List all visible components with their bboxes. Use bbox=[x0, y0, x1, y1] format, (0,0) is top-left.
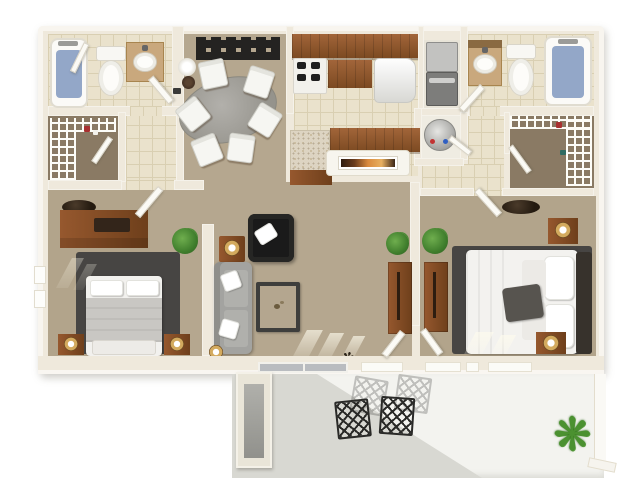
breakfast-bar-top bbox=[330, 128, 420, 152]
dining-floor-lamp-shade bbox=[178, 58, 196, 76]
living-bookshelf bbox=[388, 262, 412, 334]
dining-chair bbox=[226, 132, 256, 163]
wall-laundry-bottom bbox=[420, 108, 462, 116]
living-bookshelf-handle bbox=[397, 272, 400, 320]
water-heater-red-valve bbox=[430, 139, 435, 144]
wall-waterheater-bottom bbox=[414, 158, 464, 166]
bedroom-1-lamp-left bbox=[64, 337, 78, 351]
bedroom-2-headboard bbox=[576, 252, 592, 354]
kitchen-base-cabinets bbox=[328, 60, 372, 88]
closet-2-shelving-top bbox=[510, 116, 592, 129]
faucet-1 bbox=[142, 45, 148, 51]
faucet-2 bbox=[482, 47, 488, 53]
bedroom-1-footboard bbox=[92, 340, 156, 355]
sink-1 bbox=[133, 52, 157, 72]
bar-framed-art bbox=[338, 156, 398, 170]
window-opening bbox=[488, 362, 532, 372]
kitchen-upper-cabinets bbox=[292, 34, 418, 58]
closet-2-clothes-red bbox=[556, 122, 562, 128]
wall-bedroom1-top-left bbox=[48, 180, 122, 190]
coffee-table-decor bbox=[274, 304, 280, 309]
closet-1-clothes-white bbox=[93, 130, 98, 135]
wall-switch bbox=[173, 88, 181, 94]
closet-2-clothes-teal bbox=[560, 150, 566, 155]
bedroom-2-oval-decor bbox=[502, 200, 540, 214]
bedroom-2-lamp-top bbox=[555, 222, 571, 238]
wall-bedroom1-top-right bbox=[174, 180, 204, 190]
kitchen-granite-counter bbox=[290, 130, 330, 174]
patio-chair bbox=[334, 398, 372, 439]
wall-closet1-hall1 bbox=[118, 112, 126, 182]
left-wall-window bbox=[34, 266, 46, 284]
wall-bedroom2-top-left bbox=[420, 188, 474, 196]
patio-right-wall bbox=[594, 374, 606, 464]
bedroom-1-pillow bbox=[90, 280, 123, 296]
bathtub-1-faucet bbox=[58, 41, 78, 46]
wall-laundry-bath2 bbox=[460, 26, 468, 108]
bathtub-2-mat bbox=[552, 46, 584, 98]
toilet-2-bowl bbox=[508, 58, 534, 96]
bedroom-1-plant bbox=[172, 228, 198, 254]
bedroom-1-dresser-tray bbox=[94, 218, 130, 232]
wall-kitchen-laundry bbox=[418, 26, 424, 110]
bedroom1-door-threshold bbox=[126, 180, 174, 190]
left-wall-window bbox=[34, 290, 46, 308]
window-opening bbox=[466, 362, 479, 372]
stove-burner bbox=[297, 62, 306, 69]
refrigerator bbox=[374, 58, 416, 103]
living-plant bbox=[386, 232, 409, 255]
closet-1-clothes-red bbox=[84, 126, 90, 132]
dining-chair bbox=[197, 58, 228, 91]
washer-dryer-handle bbox=[429, 78, 455, 83]
bedroom-2-lamp-bottom bbox=[543, 335, 559, 351]
wall-bedroom1-living bbox=[202, 224, 214, 356]
closet-1-shelving-top bbox=[50, 118, 116, 132]
side-table-lamp bbox=[224, 240, 240, 256]
wall-bedroom2-top-right bbox=[502, 188, 594, 196]
toilet-2-tank bbox=[506, 44, 536, 59]
bedroom-2-bookshelf-handle bbox=[433, 272, 436, 318]
dining-wall-art bbox=[196, 37, 280, 60]
bath1-door-threshold bbox=[130, 106, 162, 116]
bedroom-2-accent-pillow bbox=[502, 284, 544, 323]
bedroom-1-pillow bbox=[126, 280, 159, 296]
patio-storage-interior bbox=[244, 384, 264, 458]
bathtub-2-faucet bbox=[558, 39, 578, 44]
stove-burner bbox=[297, 74, 306, 81]
bedroom-1-blanket bbox=[86, 298, 162, 342]
stove-burner bbox=[311, 62, 320, 69]
floor-plan-render: ✻ ❋ bbox=[0, 0, 640, 490]
window-opening bbox=[425, 362, 461, 372]
dining-floor-lamp-base bbox=[182, 76, 195, 89]
bedroom-2-bookshelf bbox=[424, 262, 448, 332]
hall-1-floor bbox=[126, 112, 176, 182]
patio-plant-glyph: ❋ bbox=[553, 407, 592, 461]
stove-burner bbox=[311, 74, 320, 81]
bath2-door-threshold bbox=[470, 106, 500, 116]
patio-plant: ❋ bbox=[546, 408, 598, 460]
sink-2 bbox=[473, 54, 497, 74]
bedroom-2-plant bbox=[422, 228, 448, 254]
bedroom-1-lamp-right bbox=[170, 337, 184, 351]
patio-chair bbox=[379, 396, 416, 436]
toilet-1-tank bbox=[96, 46, 126, 61]
bedroom-2-pillow bbox=[544, 256, 574, 300]
window-opening bbox=[361, 362, 403, 372]
toilet-1-bowl bbox=[98, 60, 124, 96]
washer-dryer-top bbox=[426, 42, 458, 72]
